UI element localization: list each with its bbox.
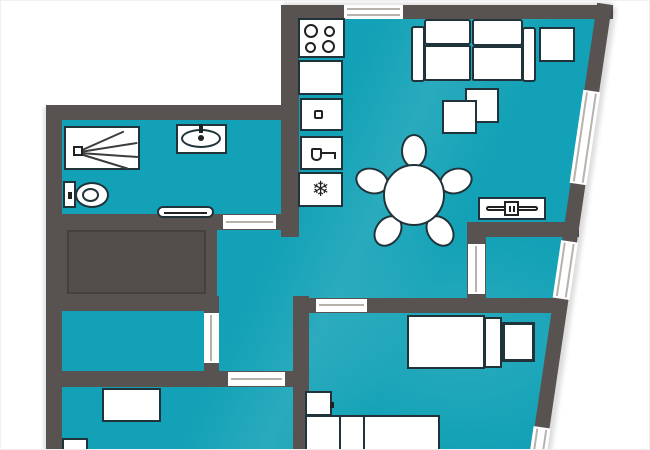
washbasin-drain-icon xyxy=(198,135,204,141)
door-line xyxy=(210,315,212,361)
coffee-table-front xyxy=(442,100,477,134)
sofa-seat-cushion xyxy=(472,46,523,81)
window-line xyxy=(542,430,547,450)
tv-sideboard xyxy=(478,197,546,220)
sofa-armrest-left xyxy=(411,26,425,82)
toilet-bowl xyxy=(75,182,109,208)
kitchen-counter xyxy=(298,60,343,95)
shower-head-icon xyxy=(73,146,83,156)
stair-core-inner xyxy=(67,230,206,294)
radiator xyxy=(157,206,214,218)
nightstand xyxy=(305,391,332,416)
single-bed-pillow xyxy=(484,317,502,368)
door-bathroom xyxy=(223,215,276,229)
door-alcove xyxy=(468,244,485,294)
window-line xyxy=(347,8,400,10)
wall-bedroom-left-top xyxy=(46,296,219,311)
door-line xyxy=(319,304,364,306)
desk xyxy=(102,388,161,422)
dining-chair xyxy=(401,134,427,168)
dining-table xyxy=(383,164,445,226)
sofa-back-cushion xyxy=(472,19,523,46)
kitchen-sink-icon xyxy=(314,110,323,119)
window-top xyxy=(344,5,403,19)
single-bed xyxy=(407,315,485,369)
wall-kitchen-back xyxy=(281,5,299,237)
tv-bracket-line xyxy=(509,206,511,212)
stove-burner-icon xyxy=(324,26,335,37)
tap-icon xyxy=(311,148,322,161)
door-line xyxy=(475,246,477,292)
stove-burner-icon xyxy=(304,24,318,38)
double-bed xyxy=(305,415,440,450)
window-right-lower xyxy=(530,426,551,450)
window-line xyxy=(533,428,538,450)
nightstand xyxy=(62,438,88,450)
shower xyxy=(64,126,140,170)
nightstand-knob xyxy=(330,402,334,408)
door-bedroom-bottom-left xyxy=(228,372,285,386)
radiator-line xyxy=(164,212,207,214)
sofa-back-cushion xyxy=(424,19,471,45)
tap-spout-icon xyxy=(334,152,336,159)
door-line xyxy=(226,221,273,223)
wall-bathroom-top xyxy=(46,105,299,120)
bed-divider-line xyxy=(339,417,341,450)
kitchen-sink-unit xyxy=(300,98,343,131)
floor-plan-image: ❄ xyxy=(0,0,650,450)
stove-burner-icon xyxy=(305,42,316,53)
wall-top xyxy=(283,5,613,19)
window-line xyxy=(347,14,400,16)
door-line xyxy=(231,378,282,380)
freezer-unit: ❄ xyxy=(298,172,343,207)
door-bedroom-left xyxy=(204,313,219,363)
sofa-armrest-right xyxy=(522,27,536,82)
tv-bracket-line xyxy=(513,206,515,212)
side-table xyxy=(539,27,575,62)
toilet-button-icon xyxy=(68,192,72,199)
window-line xyxy=(565,244,575,298)
washbasin xyxy=(176,124,227,154)
nightstand xyxy=(502,322,535,362)
stove xyxy=(298,18,345,58)
snowflake-icon: ❄ xyxy=(300,174,341,205)
stair-core-block xyxy=(54,217,217,305)
tv-bracket-icon xyxy=(504,201,519,216)
bed-divider-line xyxy=(363,417,365,450)
toilet-bowl-inner xyxy=(82,188,99,202)
snowflake-glyph: ❄ xyxy=(312,179,330,200)
tap-unit xyxy=(300,136,343,170)
sofa-seat-cushion xyxy=(424,45,471,81)
door-bedroom-right xyxy=(316,299,367,312)
washbasin-tap-icon xyxy=(199,124,203,133)
stove-burner-icon xyxy=(322,40,335,53)
